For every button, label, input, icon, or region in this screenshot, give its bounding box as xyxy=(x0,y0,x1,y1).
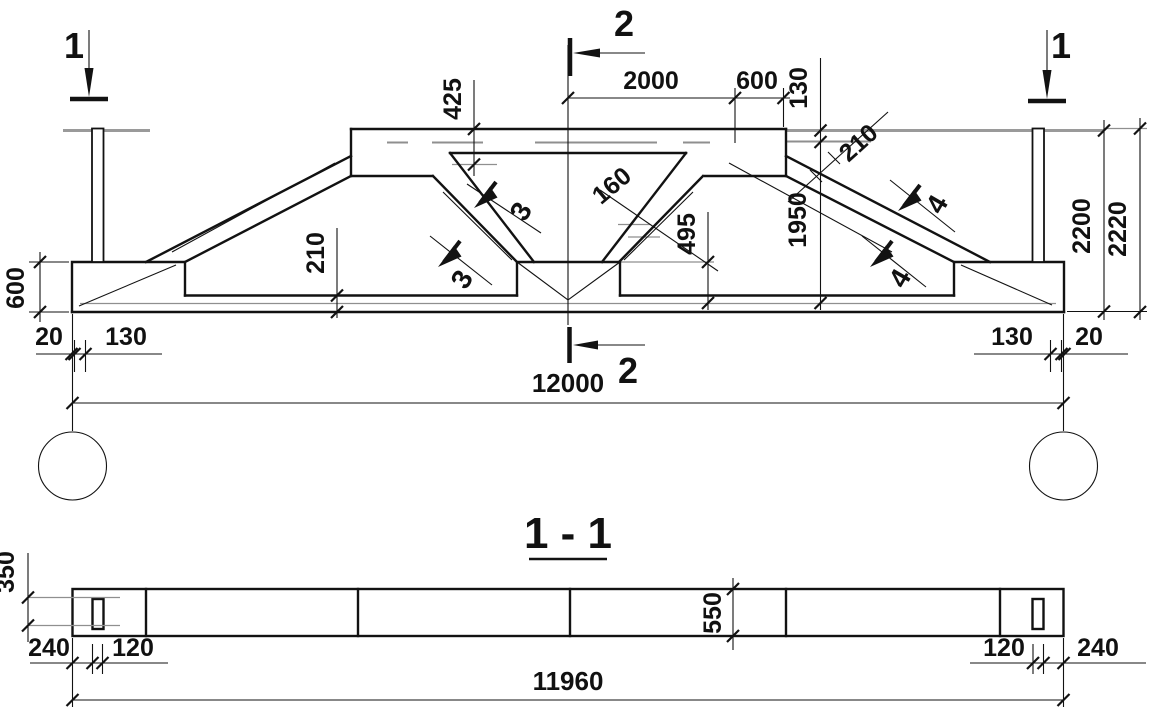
truss-elevation-outline xyxy=(72,45,1064,325)
end-block-diagonal-right xyxy=(961,265,1052,305)
grid-bubbles xyxy=(39,432,1098,500)
anchor-slot-right xyxy=(1033,599,1044,629)
anchor-slot-left xyxy=(93,599,104,629)
section-label-2-bottom: 2 xyxy=(618,350,638,391)
dim-2200: 2200 xyxy=(1068,198,1096,254)
dim-600-top: 600 xyxy=(736,67,778,95)
grid-bubble-left xyxy=(39,432,107,500)
dimensions-elevation: 2000 600 130 1950 425 495 160 210 210 xyxy=(2,58,1147,431)
detail-label-3-upper: 3 xyxy=(503,197,538,226)
dim-495: 495 xyxy=(673,213,701,255)
detail-marker-3-lower: 3 xyxy=(430,236,492,294)
detail-marker-4-upper: 4 xyxy=(890,180,955,232)
dim-600-left: 600 xyxy=(2,267,30,309)
dim-240-left: 240 xyxy=(28,634,70,662)
plan-outline xyxy=(73,589,1064,636)
grid-bubble-right xyxy=(1030,432,1098,500)
dim-120-left: 120 xyxy=(112,634,154,662)
dim-11960: 11960 xyxy=(533,666,604,696)
section-label-2-top: 2 xyxy=(614,3,634,44)
dim-120-right: 120 xyxy=(983,634,1025,662)
detail-label-4-upper: 4 xyxy=(919,189,954,218)
end-block-diagonal-left xyxy=(79,265,176,306)
detail-marker-4-lower: 4 xyxy=(862,236,926,293)
dim-210-slope: 210 xyxy=(834,119,884,168)
dim-130-right: 130 xyxy=(991,323,1033,351)
section-label-1-right: 1 xyxy=(1051,25,1071,66)
dim-160: 160 xyxy=(587,162,637,210)
detail-label-4-lower: 4 xyxy=(882,263,917,292)
section-marker-1-left: 1 xyxy=(64,25,108,99)
truss-drawing: 2000 600 130 1950 425 495 160 210 210 xyxy=(0,0,1161,718)
drawing-canvas: 2000 600 130 1950 425 495 160 210 210 xyxy=(0,0,1161,718)
detail-label-3-lower: 3 xyxy=(444,265,479,294)
dim-1950: 1950 xyxy=(784,192,812,248)
dim-130-top: 130 xyxy=(785,67,813,109)
plan-view: 1 - 1 xyxy=(73,509,1064,636)
section-marker-2-top: 2 xyxy=(570,3,645,76)
right-post xyxy=(1033,129,1045,263)
dim-2000: 2000 xyxy=(623,67,679,95)
dim-550: 550 xyxy=(699,592,727,634)
dimensions-plan: 350 550 240 120 120 240 11960 xyxy=(0,551,1146,707)
dim-12000: 12000 xyxy=(532,368,604,398)
section-label-1-left: 1 xyxy=(64,25,84,66)
dim-240-right: 240 xyxy=(1077,634,1119,662)
reference-lines xyxy=(63,129,1147,304)
left-post xyxy=(92,129,104,263)
dim-130-left: 130 xyxy=(105,323,147,351)
dim-210-chord: 210 xyxy=(302,232,330,274)
dim-350: 350 xyxy=(0,551,20,593)
dim-2220: 2220 xyxy=(1104,201,1132,257)
section-marker-1-right: 1 xyxy=(1028,25,1071,101)
dim-425: 425 xyxy=(439,78,467,120)
plan-title: 1 - 1 xyxy=(524,509,612,558)
dim-20-right: 20 xyxy=(1075,323,1103,351)
dim-20-left: 20 xyxy=(35,323,63,351)
